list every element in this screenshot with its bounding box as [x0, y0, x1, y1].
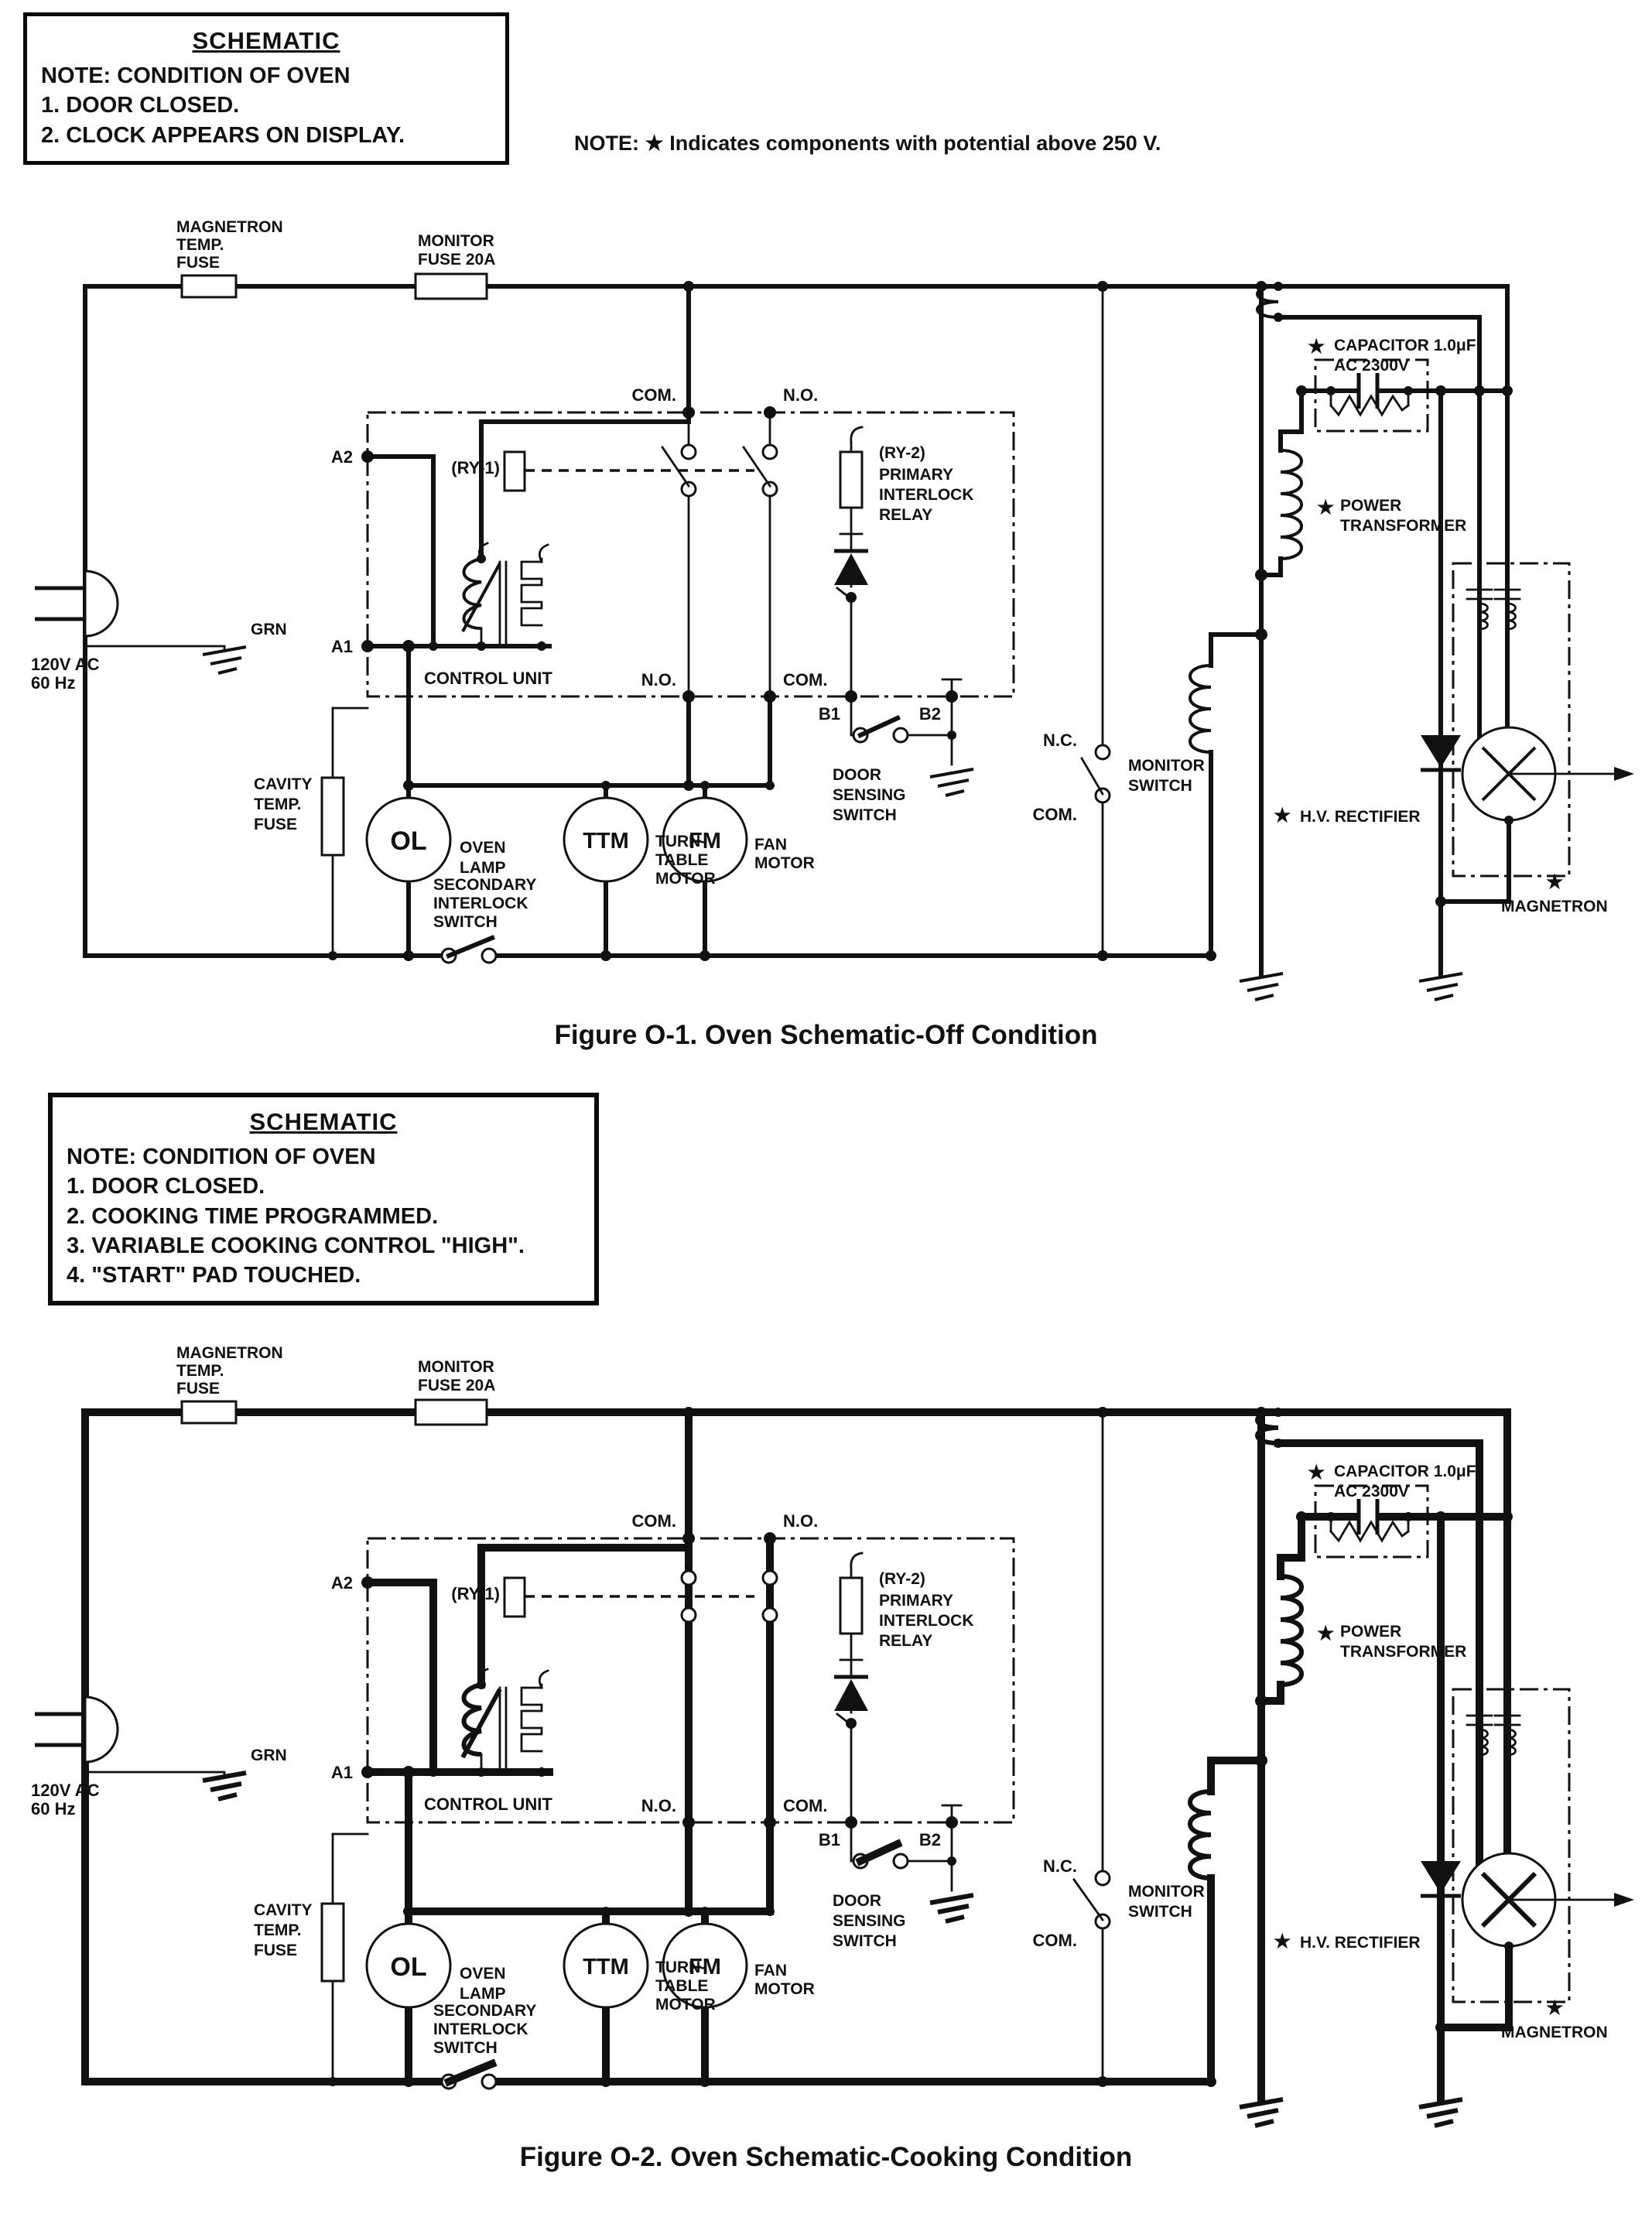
transformer-primary-coil-icon	[1190, 1791, 1211, 1878]
label-turntable: MOTOR	[655, 1996, 716, 2014]
relay-transformer-icon	[463, 543, 548, 646]
hv-secondary-coil-icon	[1281, 1576, 1301, 1685]
label-magnetron-fuse: TEMP.	[176, 236, 224, 254]
ground-icon	[930, 769, 973, 796]
label-monitor-fuse: FUSE 20A	[418, 251, 495, 269]
label-magnetron-fuse: FUSE	[176, 1380, 220, 1398]
transformer-primary-coil-icon	[1190, 665, 1211, 752]
monitor-switch-symbol	[1082, 286, 1110, 956]
label-cavity-fuse: FUSE	[254, 816, 297, 833]
note-line: 1. DOOR CLOSED.	[41, 91, 491, 120]
label-turntable: TURN-	[655, 833, 706, 850]
ground-icon	[1240, 973, 1283, 1000]
label-com-bottom: COM.	[783, 670, 827, 689]
label-supply-freq: 60 Hz	[31, 673, 75, 693]
label-no-bottom: N.O.	[641, 1796, 676, 1815]
label-ry2: PRIMARY	[879, 1592, 953, 1610]
note-line: 2. CLOCK APPEARS ON DISPLAY.	[41, 121, 491, 150]
label-oven-lamp: LAMP	[460, 1985, 506, 2003]
ground-wire	[85, 646, 224, 648]
note-line: 3. VARIABLE COOKING CONTROL "HIGH".	[67, 1231, 580, 1261]
ground-wire	[85, 1772, 224, 1774]
label-a2: A2	[331, 447, 353, 467]
label-ry2: INTERLOCK	[879, 1612, 974, 1630]
label-power-transformer: TRANSFORMER	[1340, 1643, 1466, 1661]
label-fan: FAN	[754, 836, 787, 854]
label-b2: B2	[919, 1830, 941, 1849]
door-sensing-switch-symbol	[851, 1805, 961, 1890]
label-monitor-fuse: MONITOR	[418, 1358, 494, 1376]
label-com-top: COM.	[632, 1511, 676, 1531]
label-power-transformer: POWER	[1340, 497, 1401, 515]
label-capacitor: CAPACITOR 1.0μF	[1334, 337, 1476, 354]
note-line: NOTE: CONDITION OF OVEN	[67, 1142, 580, 1172]
label-no-bottom: N.O.	[641, 670, 676, 689]
label-b1: B1	[819, 704, 840, 724]
label-secondary-interlock: SECONDARY	[433, 2002, 536, 2020]
label-door-switch: DOOR	[833, 1892, 881, 1910]
label-grn: GRN	[251, 621, 287, 638]
label-ttm: TTM	[583, 829, 629, 854]
figure-caption-cooking: Figure O-2. Oven Schematic-Cooking Condi…	[0, 2142, 1652, 2173]
label-magnetron: MAGNETRON	[1501, 2024, 1608, 2041]
label-cavity-fuse: CAVITY	[254, 775, 312, 793]
label-nc: N.C.	[1043, 730, 1077, 750]
label-control-unit: CONTROL UNIT	[424, 669, 552, 688]
label-monitor-switch: SWITCH	[1128, 1903, 1192, 1921]
label-b2: B2	[919, 704, 941, 724]
label-magnetron-fuse: MAGNETRON	[176, 1344, 283, 1362]
label-power-transformer: POWER	[1340, 1623, 1401, 1641]
label-secondary-interlock: INTERLOCK	[433, 2020, 528, 2038]
label-secondary-interlock: SWITCH	[433, 913, 498, 931]
label-com-top: COM.	[632, 385, 676, 405]
oven-schematic-drawing: 120V AC 60 Hz GRN MAGNETRON TEMP. FUSE M…	[0, 201, 1652, 1037]
label-capacitor: AC 2300V	[1334, 357, 1409, 375]
schematic-note-box-cooking: SCHEMATIC NOTE: CONDITION OF OVEN 1. DOO…	[48, 1093, 599, 1305]
figure-caption-off: Figure O-1. Oven Schematic-Off Condition	[0, 1020, 1652, 1051]
oven-schematic-cooking-figure: 120V AC 60 Hz GRN MAGNETRON TEMP. FUSE M…	[0, 1327, 1652, 2163]
label-a1: A1	[331, 1763, 353, 1782]
label-supply-voltage: 120V AC	[31, 655, 100, 674]
ground-icon	[1240, 2099, 1283, 2126]
door-sensing-switch-symbol	[851, 679, 961, 765]
label-monitor-switch: SWITCH	[1128, 777, 1192, 795]
label-control-unit: CONTROL UNIT	[424, 1795, 552, 1814]
label-nc: N.C.	[1043, 1856, 1077, 1876]
star-icon: ★	[1308, 1462, 1325, 1483]
secondary-interlock-switch-symbol	[442, 938, 496, 963]
note-title: SCHEMATIC	[67, 1108, 580, 1136]
power-plug-icon	[35, 571, 118, 636]
label-monitor-fuse: FUSE 20A	[418, 1377, 495, 1394]
label-ry2: PRIMARY	[879, 466, 953, 484]
star-icon: ★	[1546, 871, 1564, 893]
magnetron-temp-fuse-symbol	[182, 275, 236, 297]
hv-rectifier-diode-icon	[1421, 735, 1461, 770]
label-cavity-fuse: FUSE	[254, 1942, 297, 1959]
label-com-monitor: COM.	[1033, 805, 1077, 824]
note-title: SCHEMATIC	[41, 27, 491, 55]
ry1-relay-symbol	[504, 1578, 754, 1617]
ry2-primary-interlock-relay-symbol	[834, 1553, 868, 1822]
label-monitor-fuse: MONITOR	[418, 232, 494, 250]
ground-icon	[930, 1895, 973, 1921]
label-ol: OL	[390, 826, 426, 856]
oven-schematic-off-figure: 120V AC 60 Hz GRN MAGNETRON TEMP. FUSE M…	[0, 201, 1652, 1037]
label-cavity-fuse: TEMP.	[254, 1921, 301, 1939]
label-turntable: TABLE	[655, 851, 708, 869]
star-icon: ★	[1308, 336, 1325, 358]
monitor-fuse-symbol	[416, 1400, 487, 1425]
label-ry2: (RY-2)	[879, 1570, 925, 1588]
ground-icon	[1419, 973, 1462, 1000]
note-line: NOTE: CONDITION OF OVEN	[41, 61, 491, 91]
label-ry1: (RY-1)	[451, 1584, 500, 1603]
label-power-transformer: TRANSFORMER	[1340, 517, 1466, 535]
star-icon: ★	[1274, 805, 1291, 826]
label-capacitor: AC 2300V	[1334, 1483, 1409, 1500]
ground-icon	[1419, 2099, 1462, 2126]
label-turntable: TABLE	[655, 1977, 708, 1995]
label-ry2: INTERLOCK	[879, 486, 974, 504]
control-unit-wiring	[368, 1538, 689, 1772]
relay-contacts	[682, 1538, 777, 1822]
label-cavity-fuse: CAVITY	[254, 1901, 312, 1919]
relay-transformer-icon	[463, 1669, 548, 1772]
magnetron-temp-fuse-symbol	[182, 1401, 236, 1423]
ground-icon	[203, 647, 246, 673]
label-magnetron: MAGNETRON	[1501, 898, 1608, 915]
label-ttm: TTM	[583, 1955, 629, 1979]
label-ry2: RELAY	[879, 1632, 932, 1650]
note-line: 1. DOOR CLOSED.	[67, 1172, 580, 1201]
label-supply-voltage: 120V AC	[31, 1781, 100, 1800]
ground-icon	[203, 1773, 246, 1799]
star-icon: ★	[1274, 1931, 1291, 1952]
label-monitor-switch: MONITOR	[1128, 1883, 1205, 1901]
power-plug-icon	[35, 1697, 118, 1762]
star-icon: ★	[1317, 497, 1335, 518]
label-magnetron-fuse: TEMP.	[176, 1362, 224, 1380]
hv-secondary-coil-icon	[1281, 450, 1301, 559]
label-b1: B1	[819, 1830, 840, 1849]
secondary-interlock-switch-symbol	[442, 2064, 496, 2089]
monitor-switch-symbol	[1074, 1412, 1110, 2082]
cavity-temp-fuse-symbol	[322, 1834, 368, 2082]
note-line: 2. COOKING TIME PROGRAMMED.	[67, 1202, 580, 1231]
ry1-relay-symbol	[504, 452, 754, 491]
label-grn: GRN	[251, 1747, 287, 1764]
label-fan: MOTOR	[754, 1980, 815, 1998]
label-hv-rectifier: H.V. RECTIFIER	[1300, 1934, 1421, 1952]
high-voltage-note: NOTE: ★ Indicates components with potent…	[574, 132, 1161, 156]
label-oven-lamp: OVEN	[460, 839, 506, 857]
label-door-switch: SWITCH	[833, 806, 897, 824]
label-secondary-interlock: INTERLOCK	[433, 895, 528, 912]
label-ry2: (RY-2)	[879, 444, 925, 462]
note-line: 4. "START" PAD TOUCHED.	[67, 1261, 580, 1290]
label-a1: A1	[331, 637, 353, 656]
label-secondary-interlock: SECONDARY	[433, 876, 536, 894]
label-oven-lamp: OVEN	[460, 1965, 506, 1983]
label-supply-freq: 60 Hz	[31, 1799, 75, 1819]
label-turntable: TURN-	[655, 1959, 706, 1976]
schematic-note-box-off: SCHEMATIC NOTE: CONDITION OF OVEN 1. DOO…	[23, 12, 509, 165]
label-ry2: RELAY	[879, 506, 932, 524]
label-no-top: N.O.	[783, 385, 818, 405]
label-fan: FAN	[754, 1962, 787, 1979]
label-capacitor: CAPACITOR 1.0μF	[1334, 1463, 1476, 1480]
label-cavity-fuse: TEMP.	[254, 796, 301, 813]
label-com-monitor: COM.	[1033, 1931, 1077, 1950]
label-no-top: N.O.	[783, 1511, 818, 1531]
label-com-bottom: COM.	[783, 1796, 827, 1815]
label-oven-lamp: LAMP	[460, 859, 506, 877]
label-hv-rectifier: H.V. RECTIFIER	[1300, 808, 1421, 826]
label-magnetron-fuse: FUSE	[176, 254, 220, 272]
label-door-switch: SENSING	[833, 1912, 906, 1930]
relay-contacts	[662, 419, 777, 696]
hv-rectifier-diode-icon	[1421, 1861, 1461, 1896]
label-secondary-interlock: SWITCH	[433, 2039, 498, 2057]
ry2-primary-interlock-relay-symbol	[834, 427, 868, 696]
star-icon: ★	[1317, 1623, 1335, 1644]
monitor-fuse-symbol	[416, 274, 487, 299]
label-fan: MOTOR	[754, 854, 815, 872]
cavity-temp-fuse-symbol	[322, 708, 368, 956]
label-monitor-switch: MONITOR	[1128, 757, 1205, 775]
label-a2: A2	[331, 1573, 353, 1593]
control-unit-wiring	[368, 412, 689, 646]
label-ry1: (RY-1)	[451, 458, 500, 477]
label-ol: OL	[390, 1952, 426, 1982]
label-door-switch: SWITCH	[833, 1932, 897, 1950]
star-icon: ★	[1546, 1997, 1564, 2019]
label-turntable: MOTOR	[655, 870, 716, 888]
label-door-switch: SENSING	[833, 786, 906, 804]
oven-schematic-drawing: 120V AC 60 Hz GRN MAGNETRON TEMP. FUSE M…	[0, 1327, 1652, 2163]
label-door-switch: DOOR	[833, 766, 881, 784]
label-magnetron-fuse: MAGNETRON	[176, 218, 283, 236]
